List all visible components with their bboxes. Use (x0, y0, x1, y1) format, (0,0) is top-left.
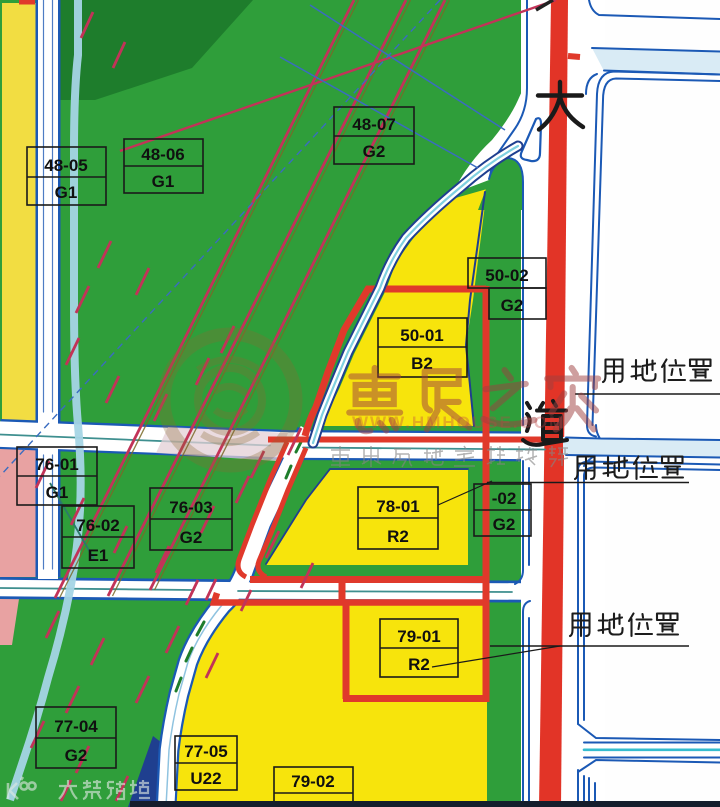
svg-text:77-04: 77-04 (54, 717, 98, 736)
svg-text:76-01: 76-01 (35, 455, 78, 474)
svg-text:G1: G1 (152, 172, 175, 191)
svg-text:48-05: 48-05 (44, 156, 87, 175)
svg-text:78-01: 78-01 (376, 497, 419, 516)
svg-text:79-01: 79-01 (397, 627, 440, 646)
svg-text:77-05: 77-05 (184, 742, 227, 761)
svg-text:G1: G1 (55, 183, 78, 202)
svg-text:G2: G2 (363, 142, 386, 161)
svg-text:79-02: 79-02 (291, 772, 334, 791)
svg-text:48-07: 48-07 (352, 115, 395, 134)
svg-text:-02: -02 (492, 489, 517, 508)
svg-text:50-02: 50-02 (485, 266, 528, 285)
svg-text:G2: G2 (65, 746, 88, 765)
svg-text:R2: R2 (387, 527, 409, 546)
svg-text:76-02: 76-02 (76, 516, 119, 535)
svg-text:U22: U22 (190, 769, 221, 788)
svg-text:G2: G2 (180, 528, 203, 547)
svg-text:G1: G1 (46, 483, 69, 502)
svg-text:48-06: 48-06 (141, 145, 184, 164)
svg-text:G2: G2 (493, 515, 516, 534)
svg-text:WWW.HMHOUSE.COM: WWW.HMHOUSE.COM (352, 413, 565, 432)
svg-text:50-01: 50-01 (400, 326, 443, 345)
svg-text:E1: E1 (88, 546, 109, 565)
svg-text:R2: R2 (408, 655, 430, 674)
svg-text:G2: G2 (501, 296, 524, 315)
svg-text:76-03: 76-03 (169, 498, 212, 517)
